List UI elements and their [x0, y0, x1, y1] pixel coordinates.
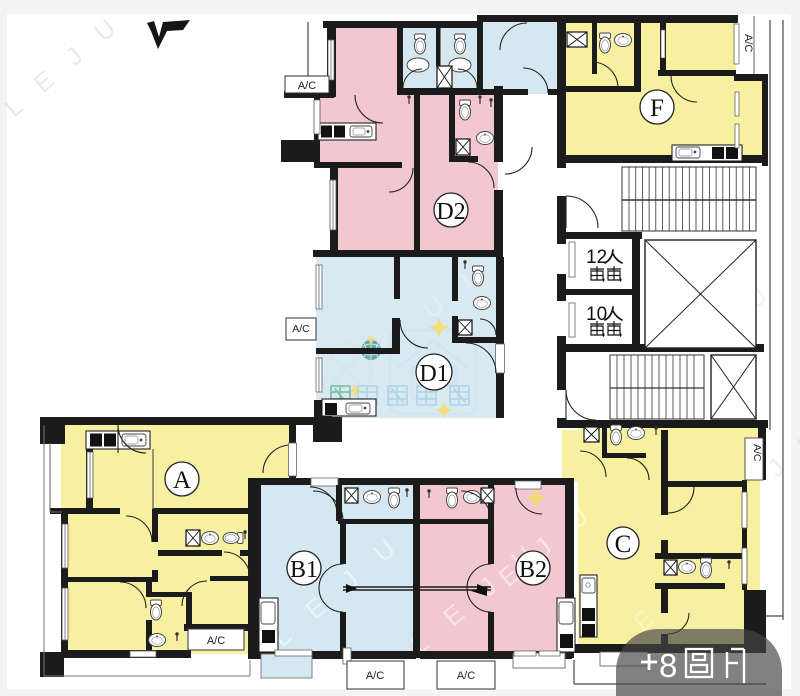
svg-text:A: A: [173, 467, 191, 494]
svg-text:F: F: [650, 95, 664, 122]
svg-text:8: 8: [659, 647, 677, 684]
svg-text:A/C: A/C: [207, 635, 225, 647]
svg-text:B2: B2: [519, 557, 547, 583]
svg-text:D1: D1: [419, 361, 448, 387]
svg-text:A/C: A/C: [298, 80, 316, 92]
svg-text:12: 12: [586, 247, 607, 268]
svg-text:A/C: A/C: [457, 670, 475, 682]
svg-text:A/C: A/C: [742, 34, 754, 52]
svg-text:B1: B1: [290, 557, 318, 583]
svg-text:A/C: A/C: [366, 670, 384, 682]
svg-text:D2: D2: [436, 199, 465, 225]
svg-text:C: C: [615, 531, 632, 558]
svg-text:A/C: A/C: [751, 444, 763, 462]
svg-text:A/C: A/C: [292, 323, 310, 335]
